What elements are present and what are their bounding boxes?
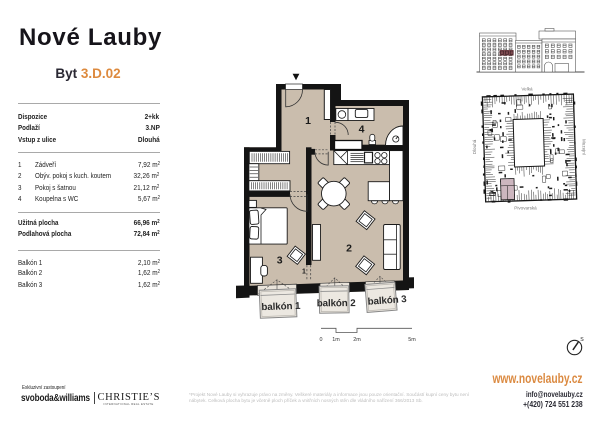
svg-text:2m: 2m [353,337,361,343]
svg-text:1: 1 [302,269,306,276]
svg-text:0: 0 [320,337,323,343]
svg-text:balkón 1: balkón 1 [261,301,301,313]
svg-text:5m: 5m [408,337,416,343]
svg-text:balkón 2: balkón 2 [317,298,357,309]
svg-text:1: 1 [305,115,311,127]
svg-text:balkón 3: balkón 3 [367,294,407,308]
svg-text:1m: 1m [332,337,340,343]
svg-text:Muzejní: Muzejní [582,139,587,156]
svg-text:2: 2 [346,243,352,255]
svg-text:S: S [580,337,584,343]
svg-text:Velká: Velká [521,87,533,92]
svg-text:3: 3 [277,255,283,267]
svg-text:Dlouhá: Dlouhá [472,139,477,154]
svg-text:4: 4 [359,124,365,136]
svg-text:Pivovarská: Pivovarská [514,206,537,211]
